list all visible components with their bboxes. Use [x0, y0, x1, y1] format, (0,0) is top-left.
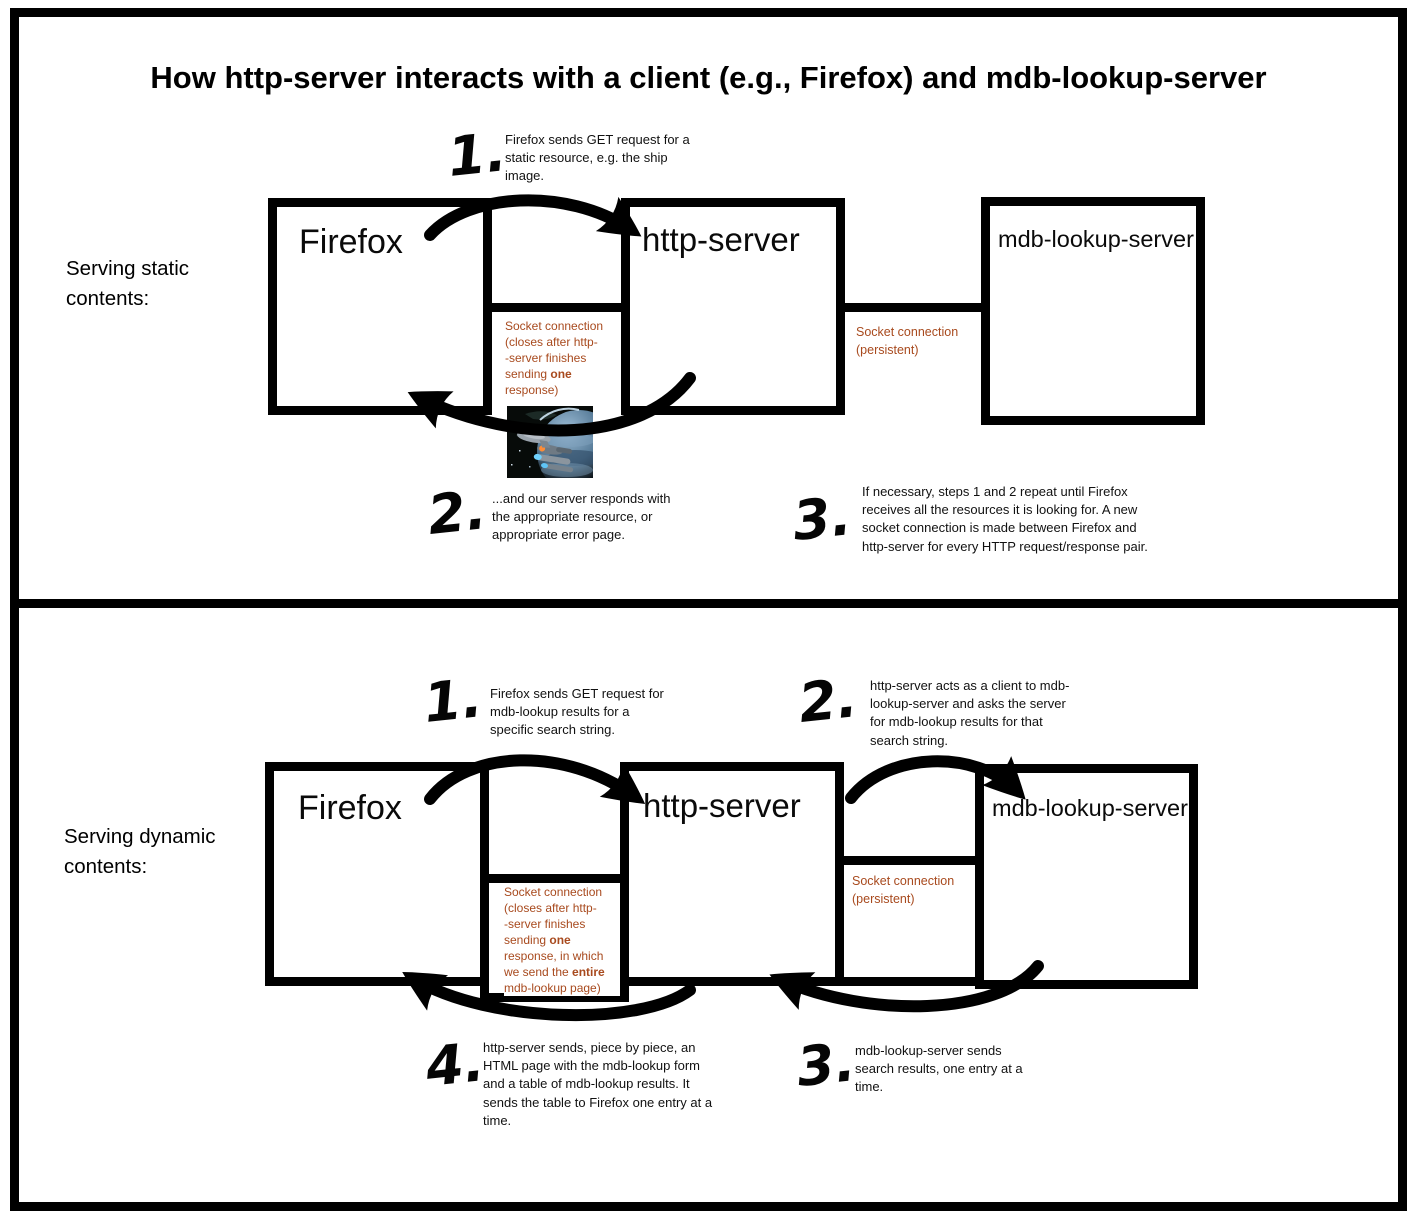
static-step2-text: ...and our server responds with the appr…	[492, 490, 690, 545]
dynamic-persistent-socket-bottom	[839, 977, 980, 986]
static-step2-number: 2.	[425, 483, 488, 543]
static-client-socket-label: Socket connection (closes after http- -s…	[505, 318, 621, 398]
dynamic-step3-number: 3.	[794, 1035, 857, 1095]
static-mdb-lookup-server-label: mdb-lookup-server	[990, 206, 1196, 253]
dynamic-persistent-socket-label: Socket connection (persistent)	[852, 872, 992, 908]
dynamic-firefox-box: Firefox	[265, 762, 489, 986]
dynamic-step4-text: http-server sends, piece by piece, an HT…	[483, 1039, 717, 1130]
static-step3-text: If necessary, steps 1 and 2 repeat until…	[862, 483, 1164, 556]
static-section-label: Serving static contents:	[66, 254, 228, 313]
dynamic-step1-text: Firefox sends GET request for mdb-lookup…	[490, 685, 674, 740]
static-persistent-socket-label: Socket connection (persistent)	[856, 323, 996, 359]
ship-image	[507, 406, 593, 478]
dynamic-http-server-label: http-server	[629, 771, 835, 825]
dynamic-client-socket-label: Socket connection (closes after http- -s…	[504, 884, 620, 996]
static-step1-number: 1.	[445, 125, 508, 185]
dynamic-client-socket-divider	[483, 874, 629, 883]
static-step3-number: 3.	[790, 489, 853, 549]
static-firefox-label: Firefox	[277, 207, 483, 262]
dynamic-firefox-label: Firefox	[274, 771, 480, 828]
static-client-socket-divider	[486, 303, 627, 312]
dynamic-persistent-socket-divider	[839, 856, 980, 865]
diagram-canvas: How http-server interacts with a client …	[0, 0, 1417, 1219]
dynamic-step1-number: 1.	[421, 671, 484, 731]
page-title: How http-server interacts with a client …	[0, 60, 1417, 96]
dynamic-step2-number: 2.	[796, 671, 859, 731]
dynamic-step2-text: http-server acts as a client to mdb-look…	[870, 677, 1082, 750]
dynamic-mdb-lookup-server-label: mdb-lookup-server	[984, 773, 1189, 822]
dynamic-section-label: Serving dynamic contents:	[64, 822, 259, 881]
dynamic-step4-number: 4.	[423, 1035, 486, 1095]
static-step1-text: Firefox sends GET request for a static r…	[505, 131, 691, 186]
static-http-server-box: http-server	[621, 198, 845, 415]
dynamic-mdb-lookup-server-box: mdb-lookup-server	[975, 764, 1198, 989]
static-persistent-socket-line	[839, 303, 986, 312]
static-firefox-box: Firefox	[268, 198, 492, 415]
static-mdb-lookup-server-box: mdb-lookup-server	[981, 197, 1205, 425]
dynamic-http-server-box: http-server	[620, 762, 844, 986]
dynamic-step3-text: mdb-lookup-server sends search results, …	[855, 1042, 1025, 1097]
static-http-server-label: http-server	[630, 207, 836, 259]
